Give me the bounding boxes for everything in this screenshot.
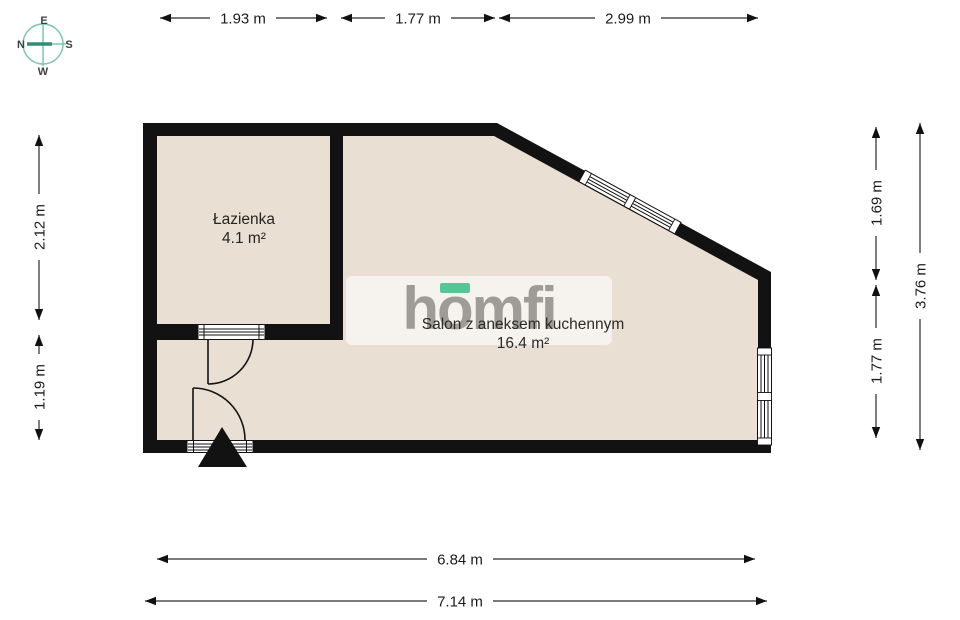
compass-rose: E S W N [17, 15, 73, 78]
dimension-right-3: 3.76 m [912, 123, 930, 450]
bathroom-label: Łazienka 4.1 m² [213, 210, 275, 248]
dimension-label: 1.93 m [220, 11, 266, 28]
dimension-left-1: 2.12 m [31, 135, 49, 320]
dimension-top-1: 1.93 m [160, 10, 327, 28]
dimension-right-1: 1.69 m [868, 127, 886, 280]
dimension-label: 1.19 m [32, 364, 49, 410]
dimension-label: 2.99 m [605, 11, 651, 28]
compass-label-right: S [65, 39, 72, 51]
dimension-label: 1.77 m [395, 11, 441, 28]
dimension-label: 7.14 m [437, 594, 483, 611]
salon-area: 16.4 m² [422, 334, 624, 353]
floorplan-page: E S W N [0, 0, 960, 620]
salon-name: Salon z aneksem kuchennym [422, 315, 624, 334]
right-wall-window [758, 348, 772, 445]
bathroom-right-wall [330, 136, 343, 340]
dimension-label: 6.84 m [437, 552, 483, 569]
salon-label: Salon z aneksem kuchennym 16.4 m² [422, 315, 624, 353]
dimension-label: 1.77 m [869, 338, 886, 384]
dimension-label: 3.76 m [913, 263, 930, 309]
dimension-bottom-2: 7.14 m [145, 593, 767, 611]
bathroom-bottom-wall-left [157, 324, 198, 340]
compass-label-bottom: W [38, 66, 49, 78]
dimension-label: 1.69 m [869, 180, 886, 226]
compass-label-left: N [17, 39, 25, 51]
dimension-label: 2.12 m [32, 204, 49, 250]
logo-accent-bar [440, 283, 470, 293]
bathroom-area: 4.1 m² [213, 229, 275, 248]
bathroom-name: Łazienka [213, 210, 275, 229]
bathroom-bottom-wall-right [265, 324, 343, 340]
dimension-top-3: 2.99 m [499, 10, 758, 28]
dimension-right-2: 1.77 m [868, 285, 886, 438]
dimension-left-2: 1.19 m [31, 335, 49, 440]
compass-label-top: E [40, 15, 47, 27]
dimension-top-2: 1.77 m [341, 10, 495, 28]
dimension-bottom-1: 6.84 m [157, 551, 755, 569]
